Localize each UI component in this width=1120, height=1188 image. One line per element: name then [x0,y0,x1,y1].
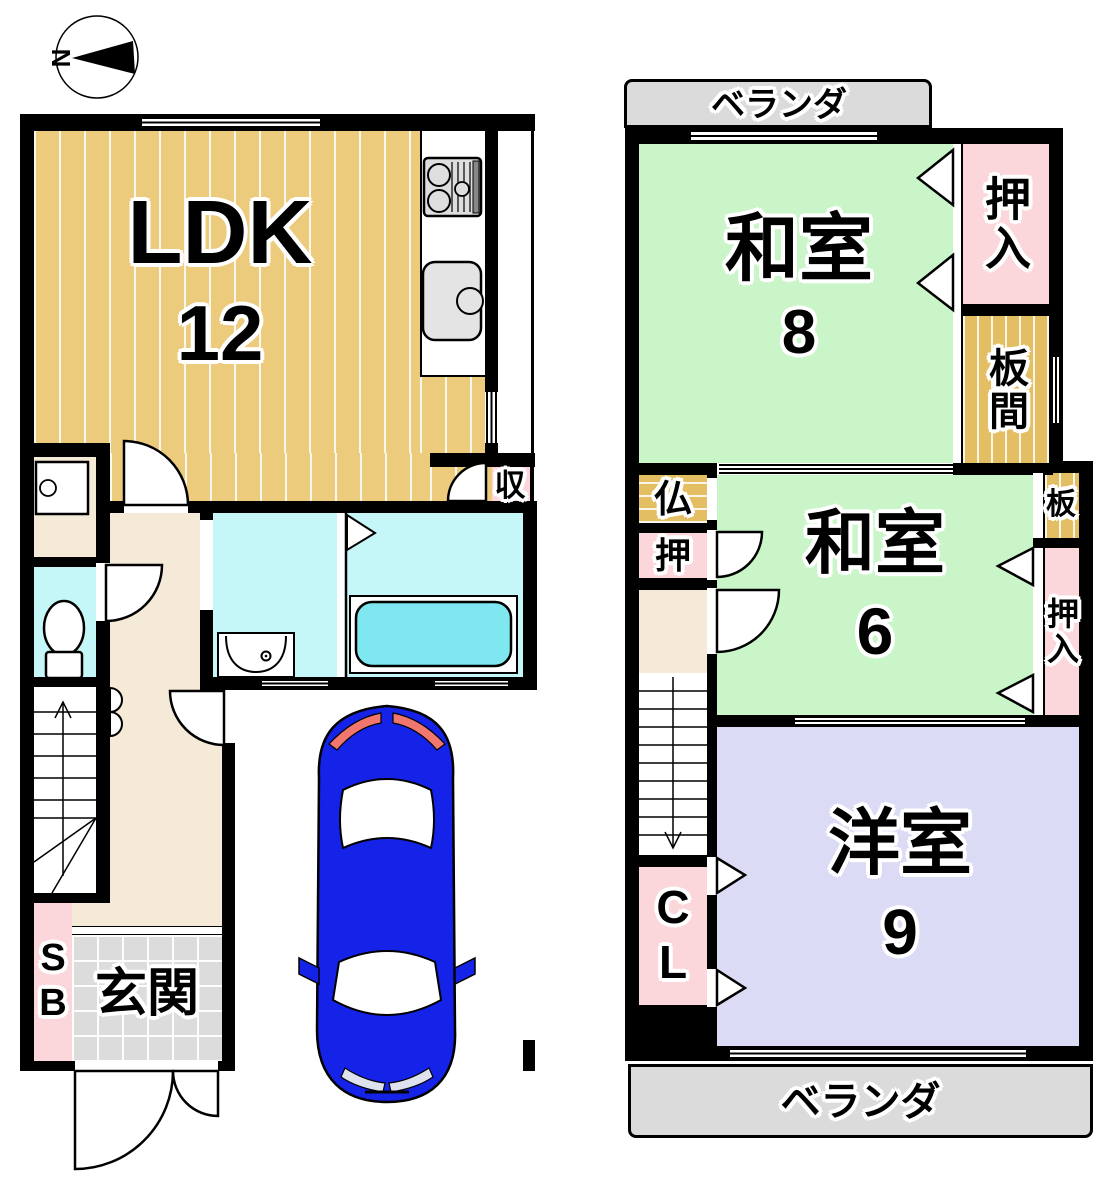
washitsu8-label: 和室 [664,212,934,286]
wall-segment [1049,461,1093,473]
youshitsu9-size: 9 [760,900,1040,964]
wall-segment [625,128,639,1061]
entrance-door-main [75,1071,173,1169]
wall-segment [20,893,110,903]
storage-label: 収 [487,470,533,501]
north-label: N [46,49,76,68]
veranda-bottom-label: ベランダ [628,1082,1093,1122]
itanoma-label: 板間 [961,318,1049,461]
room-youshitsu9 [717,727,1079,1046]
wall-segment [1033,538,1093,548]
sliding-track [1033,548,1043,715]
wall-segment [625,463,717,475]
veranda-top-label: ベランダ [626,88,932,122]
ldk-label: LDK [60,188,380,278]
wall-segment [531,131,534,467]
door-opening [96,563,110,621]
wall-segment [20,443,110,457]
wall-segment [639,523,707,533]
entrance-step-edge [72,926,222,935]
wall-segment [625,855,717,867]
door-opening [707,588,717,654]
wall-segment [961,304,1049,316]
stair-landing [639,590,707,673]
door-opening [707,478,717,520]
compass north-arrow-icon: N [46,16,138,98]
wall-segment [110,501,124,513]
door-opening [707,969,717,1007]
window [730,1048,1026,1059]
bathroom [347,513,523,677]
door-opening [200,520,213,610]
wall-segment [20,677,110,687]
oshi-label: 押 [639,538,707,574]
door-opening [124,501,188,513]
window [1051,357,1061,423]
kitchen-counter [420,131,485,377]
wall-segment [625,1005,717,1046]
wall-segment [1079,473,1093,1061]
hallway-south [110,691,222,935]
floor-plan: LDK 12 収 SB 玄関 ベランダ 和室 8 押入 板間 仏 押 和室 6 … [0,0,1120,1188]
stairs-1f [34,687,96,893]
washitsu6-label: 和室 [725,508,1025,578]
wall-segment [523,1040,535,1071]
wall-segment [222,743,235,935]
wall-segment [20,114,34,1071]
wall-segment [639,578,707,590]
oshiire-middle-label: 押入 [1043,552,1079,712]
ldk-size: 12 [60,294,380,372]
wall-segment [485,443,498,453]
washitsu8-size: 8 [664,302,934,364]
room-ldk-lower [420,377,485,453]
wall-segment [430,453,535,467]
room-ldk-corner [430,467,492,501]
door-opening [707,530,717,580]
wall-segment [523,501,537,690]
wall-segment [188,501,537,513]
window [142,117,320,128]
sliding-track [1033,473,1043,538]
shoebox-label: SB [34,908,72,1056]
ita-label: 板 [1043,490,1079,520]
window [435,679,508,688]
hallway [110,513,200,691]
wall-segment [218,1061,235,1071]
washer-room [34,457,96,557]
wall-segment [485,131,498,392]
sliding-track [953,144,961,463]
wall-segment [20,1061,75,1071]
toilet-room [34,567,96,677]
butsudan-label: 仏 [639,481,707,519]
washitsu6-size: 6 [725,598,1025,664]
stairs-2f [639,673,707,855]
youshitsu9-label: 洋室 [760,808,1040,880]
sliding-door [795,716,1025,726]
window [262,679,328,688]
washroom [213,513,337,677]
entrance-label: 玄関 [72,968,222,1020]
wall-segment [222,935,235,1071]
window [486,392,497,443]
window [691,130,877,142]
oshiire-upper-label: 押入 [961,148,1049,300]
entrance-door-child [173,1071,218,1116]
door-opening [707,857,717,895]
room-ldk-south [110,453,430,501]
closet-cl-label: CL [639,872,707,1000]
car-top-view-icon [299,706,475,1102]
sliding-door [719,464,953,474]
